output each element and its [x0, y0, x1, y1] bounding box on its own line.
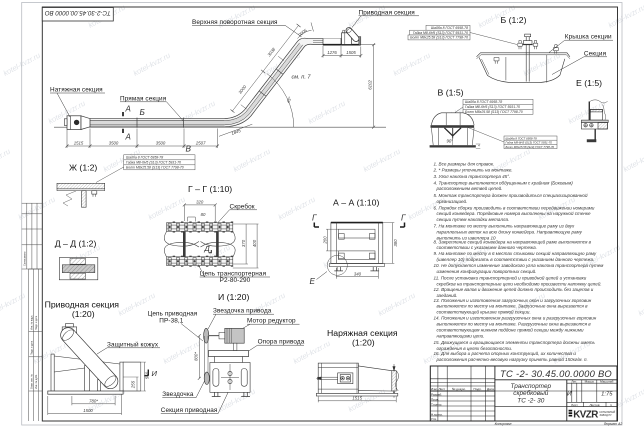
svg-text:15. Движущиеся и вращающиеся э: 15. Движущиеся и вращающиеся элементы тр…: [434, 340, 596, 345]
svg-text:ТС-2-30.45.00.0000 ВО: ТС-2-30.45.00.0000 ВО: [45, 9, 111, 16]
svg-text:Шайба 8 ГОСТ 6958-78: Шайба 8 ГОСТ 6958-78: [431, 26, 468, 30]
svg-text:соответствии с указанием данно: соответствии с указанием данного чертежа…: [437, 245, 537, 250]
svg-text:соответствующей крышке прямой: соответствующей крышке прямой секции.: [437, 308, 531, 314]
svg-text:Д – Д (1:2): Д – Д (1:2): [55, 239, 97, 249]
svg-text:Дата: Дата: [487, 387, 494, 391]
svg-text:А – А (1:10): А – А (1:10): [333, 198, 379, 208]
svg-text:kotel-kvzr.ru: kotel-kvzr.ru: [307, 98, 348, 125]
svg-text:3500: 3500: [109, 141, 119, 146]
svg-text:Подп. и дата: Подп. и дата: [35, 315, 38, 330]
svg-text:Формат А2: Формат А2: [604, 422, 623, 426]
svg-text:Разраб.: Разраб.: [431, 392, 442, 396]
svg-text:Звездочка: Звездочка: [162, 391, 194, 398]
svg-text:340: 340: [354, 271, 362, 276]
svg-text:В: В: [186, 145, 192, 154]
svg-text:Е (1:5): Е (1:5): [576, 78, 602, 88]
svg-text:4. Транспортер выполняется об: 4. Транспортер выполняется обдущенным с …: [434, 179, 574, 185]
svg-text:380: 380: [393, 239, 398, 247]
svg-text:Г: Г: [312, 214, 317, 223]
svg-text:Р2-80-290: Р2-80-290: [220, 277, 251, 284]
svg-text:И (1:20): И (1:20): [218, 292, 249, 302]
svg-text:11. После установки транспорте: 11. После установки транспортерной и при…: [434, 274, 587, 280]
svg-text:Натяжная секция: Натяжная секция: [50, 87, 103, 94]
svg-text:И: И: [567, 391, 572, 398]
svg-text:Болт М8х25.58 (S13) ГОСТ 7798-: Болт М8х25.58 (S13) ГОСТ 7798-70: [410, 36, 468, 40]
svg-text:kotel-kvzr.ru: kotel-kvzr.ru: [607, 2, 644, 29]
svg-text:1845: 1845: [231, 128, 242, 136]
svg-text:1276: 1276: [327, 50, 337, 55]
svg-text:Приводная секция: Приводная секция: [45, 300, 120, 310]
svg-text:(швеллер 10) подрезать в соотв: (швеллер 10) подрезать в соответствии с …: [437, 257, 595, 262]
svg-text:8. Закрепление секций конвейе: 8. Закрепление секций конвейера на напра…: [434, 238, 592, 244]
svg-text:Инв. № подл.: Инв. № подл.: [30, 315, 33, 330]
svg-text:780*: 780*: [89, 398, 98, 403]
svg-text:секции путем накладки металла.: секции путем накладки металла.: [437, 217, 510, 222]
svg-text:Б: Б: [140, 108, 146, 117]
svg-text:Д: Д: [204, 244, 210, 253]
svg-text:Взам. инв. №: Взам. инв. №: [30, 374, 33, 389]
svg-text:Транспортер: Транспортер: [511, 383, 552, 390]
svg-text:Верхняя поворотная секция: Верхняя поворотная секция: [192, 19, 278, 26]
svg-text:1. Все размеры для справок.: 1. Все размеры для справок.: [434, 162, 495, 167]
svg-text:Крышка секции: Крышка секции: [565, 34, 612, 41]
svg-text:Лит.: Лит.: [571, 379, 577, 383]
svg-text:см. п. 7: см. п. 7: [292, 75, 312, 81]
svg-text:Подп. и дата: Подп. и дата: [30, 340, 33, 355]
svg-text:14. Положения и изготовления р: 14. Положения и изготовления разгрузочны…: [434, 315, 597, 320]
svg-text:Масса: Масса: [585, 379, 594, 383]
svg-text:1500: 1500: [83, 408, 93, 413]
svg-text:kotel-kvzr.ru: kotel-kvzr.ru: [132, 50, 173, 77]
svg-text:Лист: Лист: [571, 403, 578, 407]
svg-text:Секция: Секция: [584, 50, 607, 57]
svg-text:3500: 3500: [156, 141, 166, 146]
svg-text:Болт М8х25.58 (S13) ГОСТ 7798-: Болт М8х25.58 (S13) ГОСТ 7798-70: [506, 145, 555, 149]
svg-text:13. Положения и изготовления з: 13. Положения и изготовления загрузочных…: [434, 298, 592, 303]
svg-text:4: 4: [478, 144, 480, 148]
svg-text:kotel-kvzr.ru: kotel-kvzr.ru: [637, 290, 644, 317]
svg-text:ЗАВОД РУ: ЗАВОД РУ: [600, 414, 613, 417]
svg-text:6102: 6102: [367, 80, 372, 90]
svg-text:№ докум.: № докум.: [452, 387, 466, 391]
svg-text:изменения конфигурации поворот: изменения конфигурации поворотных секций…: [437, 268, 537, 274]
svg-text:Прямая секция: Прямая секция: [120, 95, 167, 102]
svg-text:секций конвейера. Порядковые н: секций конвейера. Порядковые номера выпо…: [437, 210, 591, 216]
svg-text:Инв. № дубл.: Инв. № дубл.: [35, 374, 38, 389]
svg-text:Защитный кожух: Защитный кожух: [107, 340, 159, 348]
svg-text:И: И: [152, 369, 158, 378]
svg-text:скребковый: скребковый: [513, 389, 549, 397]
svg-text:Гайка М8-6Н5 (S13) ГОСТ 5931-7: Гайка М8-6Н5 (S13) ГОСТ 5931-70: [465, 105, 520, 109]
svg-text:kotel-kvzr.ru: kotel-kvzr.ru: [232, 146, 273, 173]
svg-text:(1:20): (1:20): [72, 309, 95, 319]
svg-text:Г: Г: [401, 214, 406, 223]
svg-text:9. На монтаже по месту в 6 ме: 9. На монтаже по месту в 6 местах стыков…: [434, 250, 597, 256]
svg-text:KVZR: KVZR: [573, 409, 598, 420]
svg-text:соответствующем нижнем поддоне: соответствующем нижнем поддоне прямой се…: [437, 326, 584, 332]
svg-text:1515: 1515: [74, 141, 84, 146]
svg-text:Наряжная секция: Наряжная секция: [327, 328, 398, 338]
svg-text:320: 320: [196, 200, 204, 205]
svg-text:kotel-kvzr.ru: kotel-kvzr.ru: [0, 290, 27, 317]
svg-text:выполняются по месту на монтаж: выполняются по месту на монтаже. Загрузо…: [437, 304, 589, 309]
svg-text:370: 370: [241, 239, 246, 247]
svg-text:2507: 2507: [195, 141, 206, 146]
svg-text:Гайка М8-6Н5 (S13) ГОСТ 5931-7: Гайка М8-6Н5 (S13) ГОСТ 5931-70: [126, 161, 181, 165]
svg-text:400: 400: [252, 239, 257, 247]
svg-text:ПР-38,1: ПР-38,1: [159, 318, 183, 325]
svg-text:Пров.: Пров.: [431, 397, 439, 401]
svg-text:12. Вращение валов и движение: 12. Вращение валов и движение цепей долж…: [434, 286, 594, 292]
svg-text:Секция приводная: Секция приводная: [161, 407, 218, 414]
svg-text:Б (1:2): Б (1:2): [501, 15, 527, 25]
svg-text:Е: Е: [310, 277, 316, 286]
svg-text:kotel-kvzr.ru: kotel-kvzr.ru: [522, 50, 563, 77]
svg-text:А: А: [125, 105, 131, 114]
svg-text:7. На монтаже по месту выполн: 7. На монтаже по месту выполнить направл…: [434, 223, 575, 228]
svg-text:kotel-kvzr.ru: kotel-kvzr.ru: [362, 146, 403, 173]
svg-text:выполняются по месту на монтаж: выполняются по месту на монтаже. Разгруз…: [437, 321, 592, 326]
svg-text:5. Монтаж транспортера должен: 5. Монтаж транспортера должен производит…: [434, 192, 588, 198]
svg-text:2. * Размеры уточнить на монта: 2. * Размеры уточнить на монтаже.: [433, 168, 513, 173]
svg-text:1:75: 1:75: [601, 392, 613, 398]
svg-text:kotel-kvzr.ru: kotel-kvzr.ru: [147, 194, 188, 221]
svg-text:Болт М8х25.58 (S13) ГОСТ 7798-: Болт М8х25.58 (S13) ГОСТ 7798-70: [126, 166, 184, 170]
svg-text:Ж (1:2): Ж (1:2): [69, 163, 97, 173]
svg-text:Звездочка привода: Звездочка привода: [213, 308, 272, 315]
svg-text:Опора привода: Опора привода: [258, 339, 305, 346]
svg-text:параллельных веток на всю длин: параллельных веток на всю длину конвейер…: [437, 228, 583, 234]
svg-text:6. Порядок сборки производить: 6. Порядок сборки производить в соответс…: [434, 205, 595, 210]
svg-text:Приводная секция: Приводная секция: [359, 9, 416, 16]
svg-text:Мотор редуктор: Мотор редуктор: [247, 318, 296, 325]
svg-text:1515: 1515: [352, 395, 362, 400]
svg-text:kotel-kvzr.ru: kotel-kvzr.ru: [377, 290, 418, 317]
svg-text:Н.контр.: Н.контр.: [431, 412, 443, 416]
svg-text:ограждения в целях безопасност: ограждения в целях безопасности.: [437, 346, 513, 351]
svg-text:Подп.: Подп.: [474, 387, 482, 391]
svg-text:Гайка М8-6Н5 (S13) ГОСТ 5931-7: Гайка М8-6Н5 (S13) ГОСТ 5931-70: [413, 31, 468, 35]
svg-text:kotel-kvzr.ru: kotel-kvzr.ru: [392, 50, 433, 77]
svg-text:80: 80: [201, 212, 206, 217]
svg-text:Т.контр.: Т.контр.: [431, 402, 442, 406]
svg-text:Шайба 8 ГОСТ 6958-78: Шайба 8 ГОСТ 6958-78: [465, 100, 502, 104]
svg-text:Копировал: Копировал: [495, 422, 512, 426]
svg-text:Цепь приводная: Цепь приводная: [148, 311, 198, 318]
svg-text:Изм. Лист: Изм. Лист: [431, 387, 446, 391]
svg-text:В (1:5): В (1:5): [438, 88, 464, 98]
svg-text:10. Не допускается изменение з: 10. Не допускается изменение заводского …: [434, 263, 605, 268]
svg-text:Болт М8х25.58 (S13) ГОСТ 7798-: Болт М8х25.58 (S13) ГОСТ 7798-70: [465, 110, 523, 114]
svg-text:А: А: [125, 132, 131, 141]
svg-text:90°: 90°: [447, 139, 454, 144]
svg-text:255: 255: [131, 380, 136, 389]
svg-text:скребков на транспортерные цеп: скребков на транспортерные цепи необходи…: [437, 280, 602, 286]
svg-text:Утв.: Утв.: [431, 417, 437, 421]
svg-text:800*: 800*: [194, 352, 199, 361]
svg-text:1505: 1505: [346, 50, 356, 55]
svg-text:Масштаб: Масштаб: [600, 379, 613, 383]
svg-text:Г – Г (1:10): Г – Г (1:10): [188, 184, 232, 194]
svg-text:Шайба 8 ГОСТ 6958-78: Шайба 8 ГОСТ 6958-78: [126, 156, 163, 160]
svg-text:200: 200: [322, 236, 327, 245]
svg-text:kotel-kvzr.ru: kotel-kvzr.ru: [0, 146, 12, 173]
svg-text:ТС -2- 30: ТС -2- 30: [517, 397, 544, 404]
svg-text:1: 1: [610, 403, 612, 407]
svg-text:расположения расчетно-весовую: расположения расчетно-весовую нагрузку п…: [436, 356, 588, 362]
svg-text:560: 560: [145, 371, 150, 379]
svg-text:Согласовано: Согласовано: [24, 251, 27, 266]
svg-text:3. Угол наклона транспортера: 3. Угол наклона транспортера 45°.: [434, 174, 511, 179]
svg-text:ТС -2- 30.45.00.0000 ВО: ТС -2- 30.45.00.0000 ВО: [500, 368, 612, 379]
svg-text:kotel-kvzr.ru: kotel-kvzr.ru: [622, 146, 644, 173]
svg-text:организацией.: организацией.: [437, 198, 468, 204]
svg-text:направляющими цепи.: направляющими цепи.: [437, 333, 485, 338]
svg-text:45°: 45°: [286, 96, 293, 104]
svg-text:расположением ветвей цепей.: расположением ветвей цепей.: [436, 185, 503, 191]
svg-text:16. Для выбора и расчета опорн: 16. Для выбора и расчета опорных констру…: [434, 350, 577, 356]
svg-text:2006: 2006: [296, 27, 308, 38]
svg-text:Скребок: Скребок: [230, 202, 255, 210]
svg-text:Листов: Листов: [589, 403, 599, 407]
svg-text:(1:20): (1:20): [352, 337, 375, 347]
